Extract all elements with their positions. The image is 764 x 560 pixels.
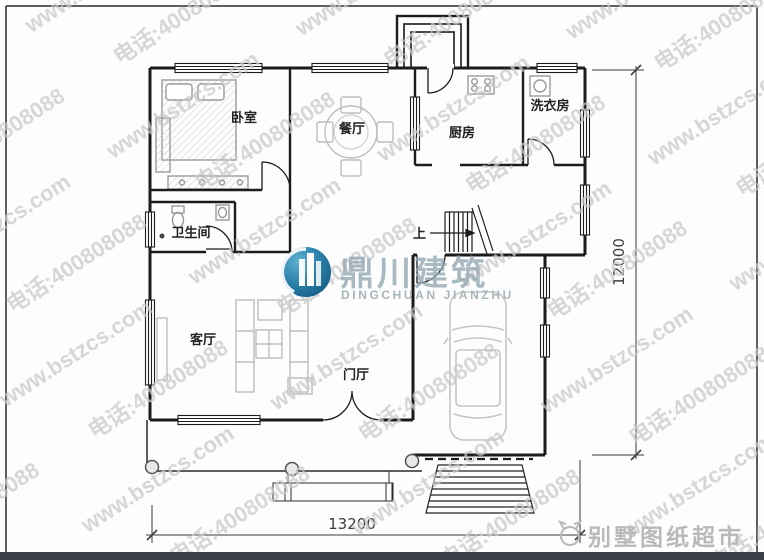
footer-brand: 别墅图纸超市 xyxy=(560,522,744,550)
floorplan-drawing: www.bstzcs.com 电话:4008080889 xyxy=(0,0,764,560)
dingchuan-logo: 鼎川建筑 DINGCHUAN JIANZHU xyxy=(281,247,514,302)
logo-icon xyxy=(281,247,331,297)
floorplan-sheet: www.bstzcs.com 电话:4008080889 xyxy=(0,0,764,560)
footer-bar xyxy=(0,552,764,560)
logo-romanized: DINGCHUAN JIANZHU xyxy=(341,288,514,302)
footer-brand-name: 别墅图纸超市 xyxy=(587,524,744,550)
